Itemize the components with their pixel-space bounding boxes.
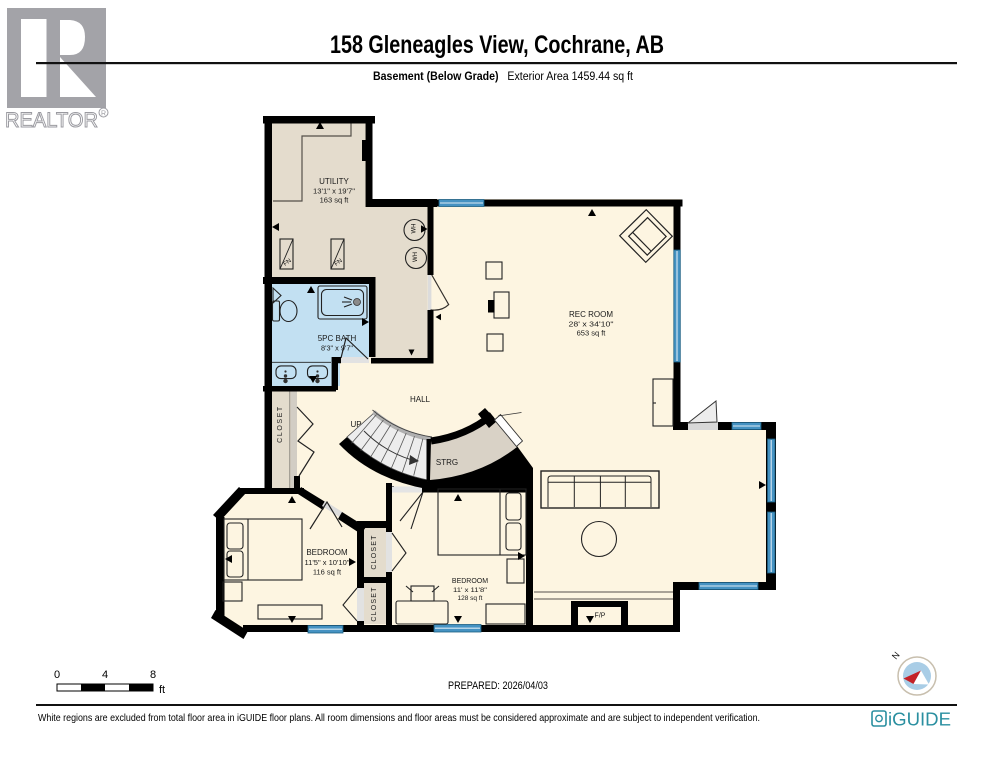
svg-text:5PC BATH: 5PC BATH bbox=[318, 334, 357, 343]
svg-text:11' x 11'8": 11' x 11'8" bbox=[453, 587, 488, 594]
svg-text:CLOSET: CLOSET bbox=[371, 586, 378, 621]
svg-text:CLOSET: CLOSET bbox=[277, 405, 284, 443]
svg-text:8: 8 bbox=[150, 669, 156, 681]
svg-text:28' x 34'10": 28' x 34'10" bbox=[569, 320, 614, 329]
svg-text:Basement (Below Grade) Exter: Basement (Below Grade) Exterior Area 145… bbox=[373, 71, 634, 83]
svg-text:158 Gleneagles View, Cochrane,: 158 Gleneagles View, Cochrane, AB bbox=[330, 31, 664, 59]
svg-text:BEDROOM: BEDROOM bbox=[306, 548, 348, 557]
svg-text:8'3" x 9'7": 8'3" x 9'7" bbox=[321, 344, 353, 353]
svg-text:WH: WH bbox=[412, 224, 418, 234]
svg-text:13'1" x 19'7": 13'1" x 19'7" bbox=[313, 187, 355, 196]
svg-text:iGUIDE: iGUIDE bbox=[888, 710, 951, 730]
svg-text:0: 0 bbox=[54, 669, 60, 681]
svg-text:128 sq ft: 128 sq ft bbox=[458, 595, 483, 602]
svg-text:4: 4 bbox=[102, 669, 108, 681]
svg-text:116 sq ft: 116 sq ft bbox=[313, 568, 342, 577]
svg-text:CLOSET: CLOSET bbox=[371, 534, 378, 569]
svg-text:11'5" x 10'10": 11'5" x 10'10" bbox=[305, 558, 350, 567]
svg-text:F/P: F/P bbox=[595, 613, 606, 620]
svg-text:ft: ft bbox=[159, 684, 165, 696]
svg-text:163 sq ft: 163 sq ft bbox=[320, 196, 350, 205]
svg-text:UTILITY: UTILITY bbox=[319, 177, 349, 186]
svg-text:WH: WH bbox=[413, 252, 419, 262]
svg-text:653 sq ft: 653 sq ft bbox=[577, 329, 607, 338]
svg-text:PREPARED: 2026/04/03: PREPARED: 2026/04/03 bbox=[448, 680, 548, 692]
svg-text:BEDROOM: BEDROOM bbox=[452, 578, 488, 585]
svg-text:White regions are excluded fro: White regions are excluded from total fl… bbox=[38, 713, 760, 724]
svg-text:UP: UP bbox=[350, 420, 361, 429]
svg-text:STRG: STRG bbox=[436, 458, 458, 467]
svg-text:R: R bbox=[101, 111, 106, 118]
svg-text:HALL: HALL bbox=[410, 395, 431, 404]
svg-text:REC ROOM: REC ROOM bbox=[569, 310, 613, 319]
svg-text:REALTOR: REALTOR bbox=[5, 109, 98, 132]
